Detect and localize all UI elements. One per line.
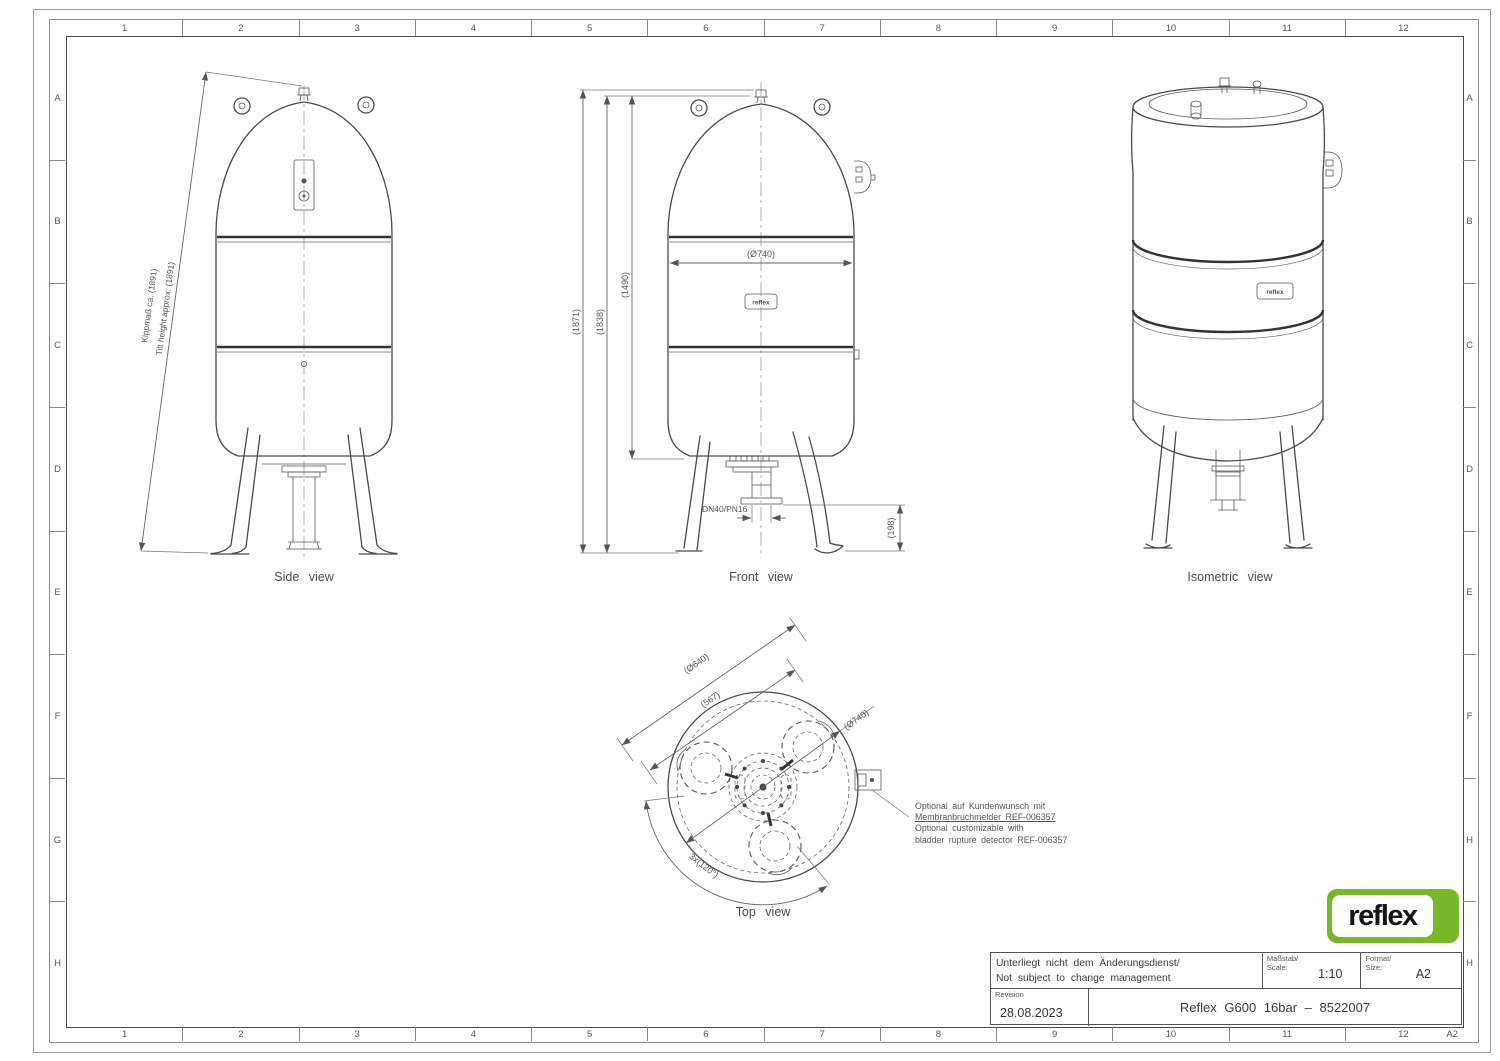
revision-cell: Revision 28.08.2023 <box>991 989 1089 1026</box>
iso-logo-plate-text: reflex <box>1266 289 1284 296</box>
top-feet-spacing-label: (567) <box>699 689 722 709</box>
top-diameter-dimension: (Ø740) <box>686 706 874 843</box>
iso-bottom-connection <box>1210 450 1246 510</box>
top-angle-label: 3x(120°) <box>687 851 720 880</box>
front-height-dimensions: (1871) (1838) (1490) <box>571 90 754 553</box>
format-value: A2 <box>1416 967 1431 981</box>
revision-date: 28.08.2023 <box>1000 1006 1063 1020</box>
front-view-label: Front view <box>729 570 794 584</box>
isometric-view-label: Isometric view <box>1187 570 1273 584</box>
front-view: reflex (Ø740) (1871) (18 <box>571 82 905 584</box>
front-clearance-label: (198) <box>886 517 896 538</box>
front-side-bracket <box>854 161 875 193</box>
annotation-note: Optional auf Kundenwunsch mit Membranbru… <box>915 801 1085 846</box>
drawing-title: Reflex G600 16bar – 8522007 <box>1180 1000 1370 1015</box>
format-labels: Format/ Size: <box>1365 955 1391 972</box>
side-view: Kippmaß ca. (1891) Tilt height approx. (… <box>139 72 397 584</box>
top-feet-dimensions: (Ø640) (567) <box>617 618 806 784</box>
scale-cell: Maßstab/ Scale: 1:10 <box>1263 953 1362 988</box>
iso-side-bracket <box>1323 152 1342 188</box>
front-connection-label: DN40/PN16 <box>702 504 748 514</box>
iso-top-rim <box>1133 87 1323 127</box>
reflex-logo-text: reflex <box>1348 900 1416 933</box>
side-tilt-dimension: Kippmaß ca. (1891) Tilt height approx. (… <box>139 72 302 553</box>
annotation-line-en-2: bladder rupture detector REF-006357 <box>915 835 1085 846</box>
format-label-en: Size: <box>1365 964 1391 973</box>
title-block-row-2: Revision 28.08.2023 Reflex G600 16bar – … <box>991 989 1461 1026</box>
iso-top-plateau <box>1149 89 1307 119</box>
front-vessel-height-label: (1838) <box>595 309 605 335</box>
iso-top-fittings <box>1191 78 1261 119</box>
front-clearance-dimension: (198) <box>783 505 905 551</box>
reflex-logo-inner: reflex <box>1332 895 1433 937</box>
front-connection-dimension: DN40/PN16 <box>702 504 786 523</box>
annotation-line-de-2: Membranbruchmelder REF-006357 <box>915 812 1085 823</box>
annotation-line-de-1: Optional auf Kundenwunsch mit <box>915 801 1085 812</box>
front-lifting-eyes <box>691 99 830 116</box>
front-logo-plate: reflex <box>745 294 777 309</box>
reflex-logo: reflex <box>1327 889 1459 943</box>
top-feet <box>677 721 835 875</box>
front-logo-plate-text: reflex <box>752 300 770 307</box>
top-view-label: Top view <box>736 905 792 919</box>
iso-weld-seams <box>1133 240 1323 420</box>
scale-value: 1:10 <box>1318 967 1342 981</box>
iso-shell-sides <box>1132 107 1325 420</box>
annotation-line-en-1: Optional customizable with <box>915 823 1085 834</box>
revision-label: Revision <box>995 991 1024 1000</box>
format-cell: Format/ Size: A2 <box>1361 953 1461 988</box>
drawing-title-cell: Reflex G600 16bar – 8522007 <box>1089 989 1461 1026</box>
front-diameter-label: (Ø740) <box>747 249 775 259</box>
front-vessel-outline <box>668 104 854 456</box>
title-block-row-1: Unterliegt nicht dem Änderungsdienst/ No… <box>991 953 1461 989</box>
iso-legs <box>1144 426 1312 548</box>
front-legs <box>676 432 843 553</box>
front-total-height-label: (1871) <box>571 309 581 335</box>
scale-labels: Maßstab/ Scale: <box>1267 955 1298 972</box>
top-feet-circle-label: (Ø640) <box>682 651 711 675</box>
top-detector-fitting <box>855 770 909 817</box>
front-upper-height-label: (1490) <box>620 272 630 298</box>
scale-label-en: Scale: <box>1267 964 1298 973</box>
front-bottom-flange <box>726 456 782 504</box>
front-side-stub <box>854 350 859 359</box>
iso-logo-plate: reflex <box>1257 283 1293 299</box>
top-view: (Ø640) (567) (Ø740) 3x(120°) Top view <box>617 618 909 919</box>
isometric-view: reflex Isometric view <box>1132 78 1343 584</box>
side-view-label: Side view <box>274 570 334 584</box>
change-note-cell: Unterliegt nicht dem Änderungsdienst/ No… <box>991 953 1263 988</box>
title-block: Unterliegt nicht dem Änderungsdienst/ No… <box>990 952 1462 1025</box>
technical-drawing: Kippmaß ca. (1891) Tilt height approx. (… <box>0 0 1500 1061</box>
change-note-de: Unterliegt nicht dem Änderungsdienst/ <box>996 956 1262 971</box>
change-note-en: Not subject to change management <box>996 971 1262 986</box>
top-diameter-label: (Ø740) <box>842 707 871 732</box>
